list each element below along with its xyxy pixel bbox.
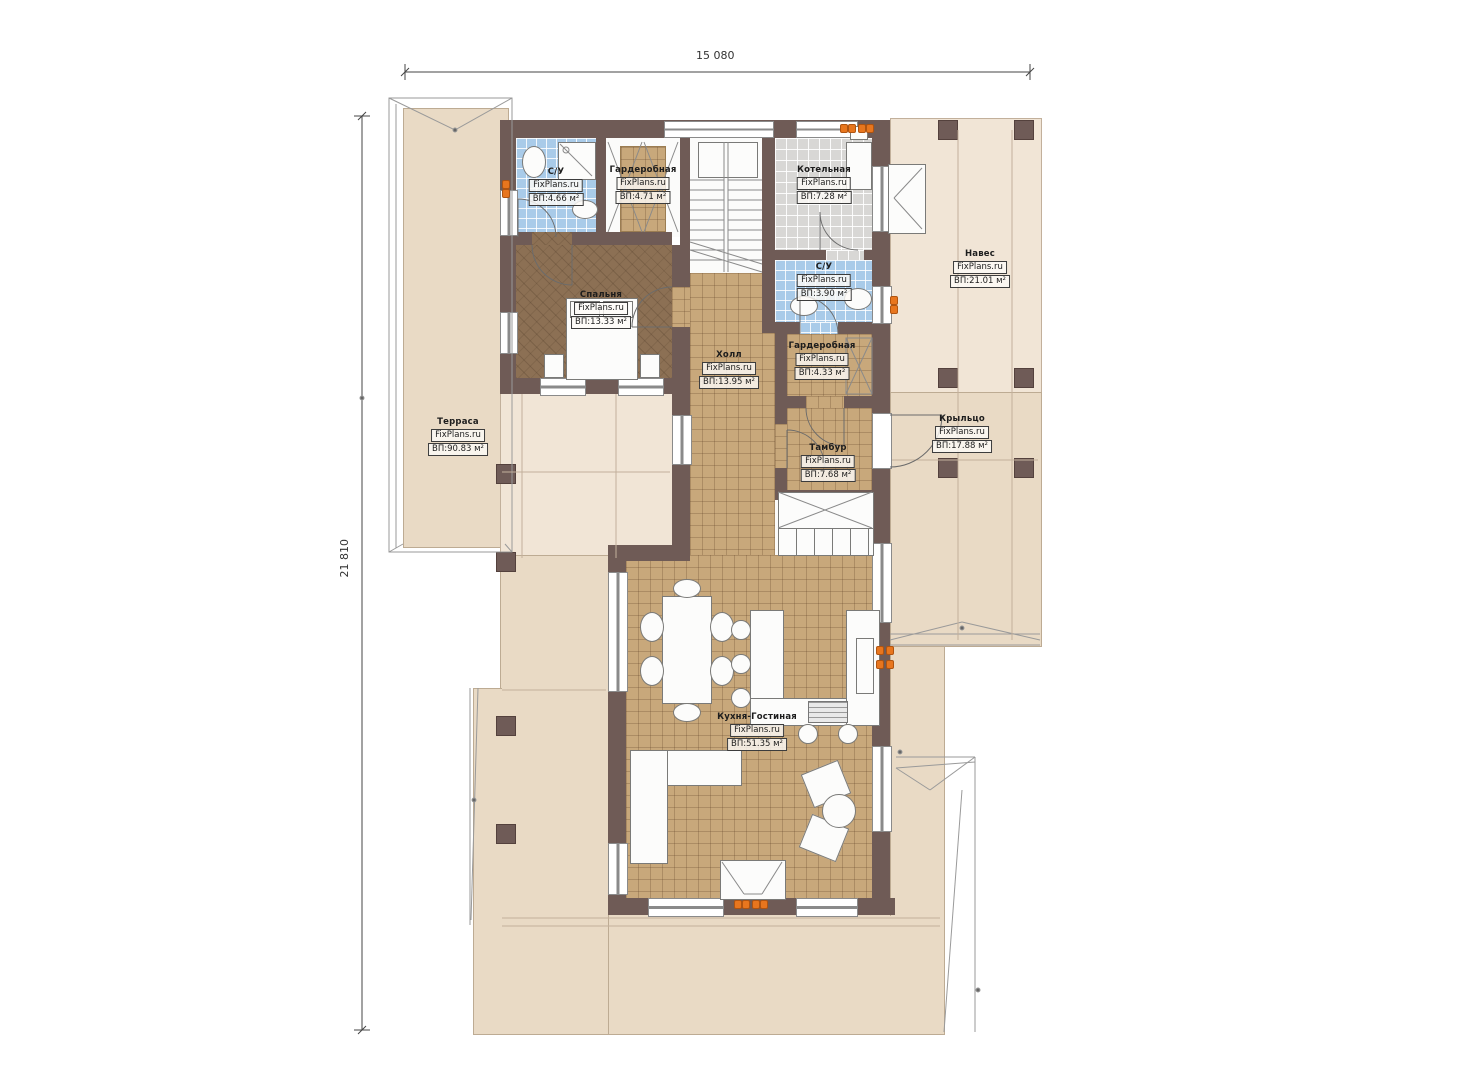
brand-watermark: FixPlans.ru	[953, 261, 1007, 274]
room-area: ВП:4.33 м²	[795, 367, 850, 380]
room-area: ВП:7.28 м²	[797, 191, 852, 204]
bar-stool	[838, 724, 858, 744]
patio-right-strip	[890, 645, 945, 916]
room-label-wc2: С/У FixPlans.ru ВП:3.90 м²	[797, 262, 852, 301]
room-area: ВП:3.90 м²	[797, 288, 852, 301]
brand-watermark: FixPlans.ru	[797, 177, 851, 190]
room-name: Терраса	[428, 417, 488, 428]
wall-hall-east	[775, 330, 787, 500]
room-name: Гардеробная	[789, 341, 856, 352]
column	[496, 552, 516, 572]
front-door-gap	[872, 413, 892, 469]
brand-watermark: FixPlans.ru	[801, 455, 855, 468]
column	[496, 464, 516, 484]
bay-window	[888, 164, 926, 234]
coffee-table	[822, 794, 856, 828]
door-gap-tambour	[806, 396, 844, 408]
brand-watermark: FixPlans.ru	[431, 429, 485, 442]
vent-marker	[848, 124, 856, 133]
window-kitchen-west-1	[608, 572, 628, 692]
wall-wardrobe1-stairs	[680, 120, 690, 273]
window-bedroom-south-1	[540, 378, 586, 396]
dining-table	[662, 596, 712, 704]
door-gap-boiler	[826, 250, 864, 260]
room-label-porch: Крыльцо FixPlans.ru ВП:17.88 м²	[932, 414, 992, 453]
patio-bottom	[608, 913, 945, 1035]
column	[938, 120, 958, 140]
patio-left-strip	[473, 688, 502, 1035]
cooktop-cabinet	[856, 638, 874, 694]
wall-wc1-wardrobe1	[596, 138, 606, 237]
room-name: С/У	[797, 262, 852, 273]
cooktop-burner	[886, 646, 894, 655]
window-west-bedroom	[500, 312, 518, 354]
bar-stool	[798, 724, 818, 744]
brand-watermark: FixPlans.ru	[797, 274, 851, 287]
nightstand-right	[640, 354, 660, 378]
room-name: Кухня-Гостиная	[717, 712, 797, 723]
brand-watermark: FixPlans.ru	[702, 362, 756, 375]
bar-stool	[731, 654, 751, 674]
room-name: Навес	[950, 249, 1010, 260]
column	[496, 716, 516, 736]
brand-watermark: FixPlans.ru	[730, 724, 784, 737]
floor-plan-canvas: 15 080 21 810 С/У FixPlans.ru ВП:4.66 м²…	[0, 0, 1474, 1080]
bar-stool	[731, 620, 751, 640]
fireplace-vent	[734, 900, 742, 909]
window-kitchen-south-1	[648, 898, 724, 917]
fireplace-vent	[760, 900, 768, 909]
column	[1014, 368, 1034, 388]
covered-terrace-west	[500, 392, 674, 562]
brand-watermark: FixPlans.ru	[574, 302, 628, 315]
brand-watermark: FixPlans.ru	[529, 179, 583, 192]
room-name: Спальня	[571, 290, 631, 301]
sofa-left-arm	[630, 750, 668, 864]
column	[496, 824, 516, 844]
room-label-wc1: С/У FixPlans.ru ВП:4.66 м²	[529, 167, 584, 206]
room-area: ВП:90.83 м²	[428, 443, 488, 456]
room-label-tambour: Тамбур FixPlans.ru ВП:7.68 м²	[801, 443, 856, 482]
door-gap-bedroom-north	[532, 232, 572, 245]
window-bedroom-south-2	[618, 378, 664, 396]
room-area: ВП:13.33 м²	[571, 316, 631, 329]
room-name: Тамбур	[801, 443, 856, 454]
room-area: ВП:13.95 м²	[699, 376, 759, 389]
room-label-terrace: Терраса FixPlans.ru ВП:90.83 м²	[428, 417, 488, 456]
room-name: Крыльцо	[932, 414, 992, 425]
cooktop-burner	[876, 660, 884, 669]
cooktop-burner	[886, 660, 894, 669]
closet-shelves	[778, 528, 874, 556]
fireplace	[720, 860, 786, 900]
column	[938, 368, 958, 388]
vent-marker	[890, 305, 898, 314]
room-area: ВП:17.88 м²	[932, 440, 992, 453]
window-north-stairs	[664, 121, 774, 138]
room-area: ВП:51.35 м²	[727, 738, 787, 751]
brand-watermark: FixPlans.ru	[616, 177, 670, 190]
room-label-kitchen-living: Кухня-Гостиная FixPlans.ru ВП:51.35 м²	[717, 712, 797, 751]
kitchen-sink-unit	[808, 701, 848, 723]
room-area: ВП:7.68 м²	[801, 469, 856, 482]
brand-watermark: FixPlans.ru	[795, 353, 849, 366]
dimension-width-label: 15 080	[692, 49, 739, 62]
fireplace-vent	[752, 900, 760, 909]
patio-left	[500, 555, 610, 1035]
room-name: Котельная	[797, 165, 852, 176]
room-area: ВП:4.66 м²	[529, 193, 584, 206]
window-kitchen-west-2	[608, 843, 628, 895]
fireplace-vent	[742, 900, 750, 909]
room-label-boiler: Котельная FixPlans.ru ВП:7.28 м²	[797, 165, 852, 204]
room-area: ВП:21.01 м²	[950, 275, 1010, 288]
dining-chair	[640, 656, 664, 686]
room-label-wardrobe2: Гардеробная FixPlans.ru ВП:4.33 м²	[789, 341, 856, 380]
terrace-deck	[403, 108, 509, 548]
dimension-height-label: 21 810	[338, 535, 351, 582]
window-kitchen-east-2	[872, 746, 892, 832]
room-name: Гардеробная	[610, 165, 677, 176]
vent-marker	[858, 124, 866, 133]
cooktop-burner	[876, 646, 884, 655]
room-area: ВП:4.71 м²	[616, 191, 671, 204]
column	[1014, 458, 1034, 478]
vent-marker	[502, 189, 510, 198]
room-name: С/У	[529, 167, 584, 178]
window-west-wing	[672, 415, 692, 465]
vent-marker	[890, 296, 898, 305]
column	[1014, 120, 1034, 140]
window-kitchen-south-2	[796, 898, 858, 917]
dining-chair	[673, 703, 701, 722]
vent-marker	[502, 180, 510, 189]
door-gap-hall-tambour	[775, 424, 787, 468]
window-east-wc2	[872, 286, 892, 324]
vent-marker	[840, 124, 848, 133]
wall-stairs-boiler	[762, 120, 775, 333]
bar-stool	[731, 688, 751, 708]
vent-marker	[866, 124, 874, 133]
stair-landing	[698, 142, 758, 178]
room-label-wardrobe1: Гардеробная FixPlans.ru ВП:4.71 м²	[610, 165, 677, 204]
room-label-bedroom: Спальня FixPlans.ru ВП:13.33 м²	[571, 290, 631, 329]
door-gap-wc2	[800, 322, 838, 334]
room-name: Холл	[699, 350, 759, 361]
dining-chair	[640, 612, 664, 642]
room-label-canopy: Навес FixPlans.ru ВП:21.01 м²	[950, 249, 1010, 288]
brand-watermark: FixPlans.ru	[935, 426, 989, 439]
closet-cabinet	[778, 492, 874, 530]
nightstand-left	[544, 354, 564, 378]
dining-chair	[673, 579, 701, 598]
column	[938, 458, 958, 478]
door-gap-bedroom-east	[672, 287, 690, 327]
room-label-hall: Холл FixPlans.ru ВП:13.95 м²	[699, 350, 759, 389]
